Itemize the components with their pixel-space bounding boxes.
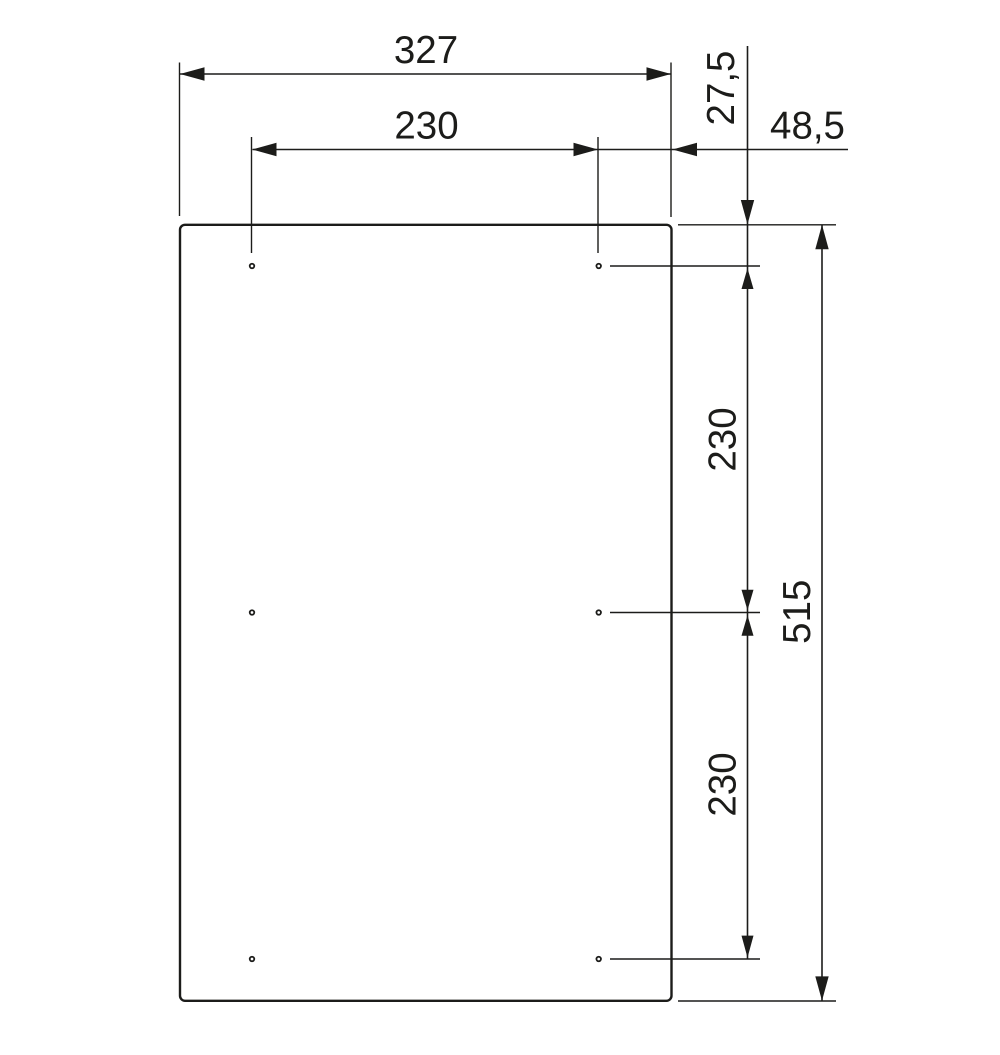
svg-text:327: 327 [394, 29, 458, 72]
svg-text:230: 230 [394, 105, 458, 148]
svg-text:48,5: 48,5 [770, 105, 845, 148]
svg-text:27,5: 27,5 [700, 51, 743, 126]
svg-text:515: 515 [776, 580, 819, 644]
svg-text:230: 230 [702, 752, 745, 816]
svg-text:230: 230 [702, 407, 745, 471]
